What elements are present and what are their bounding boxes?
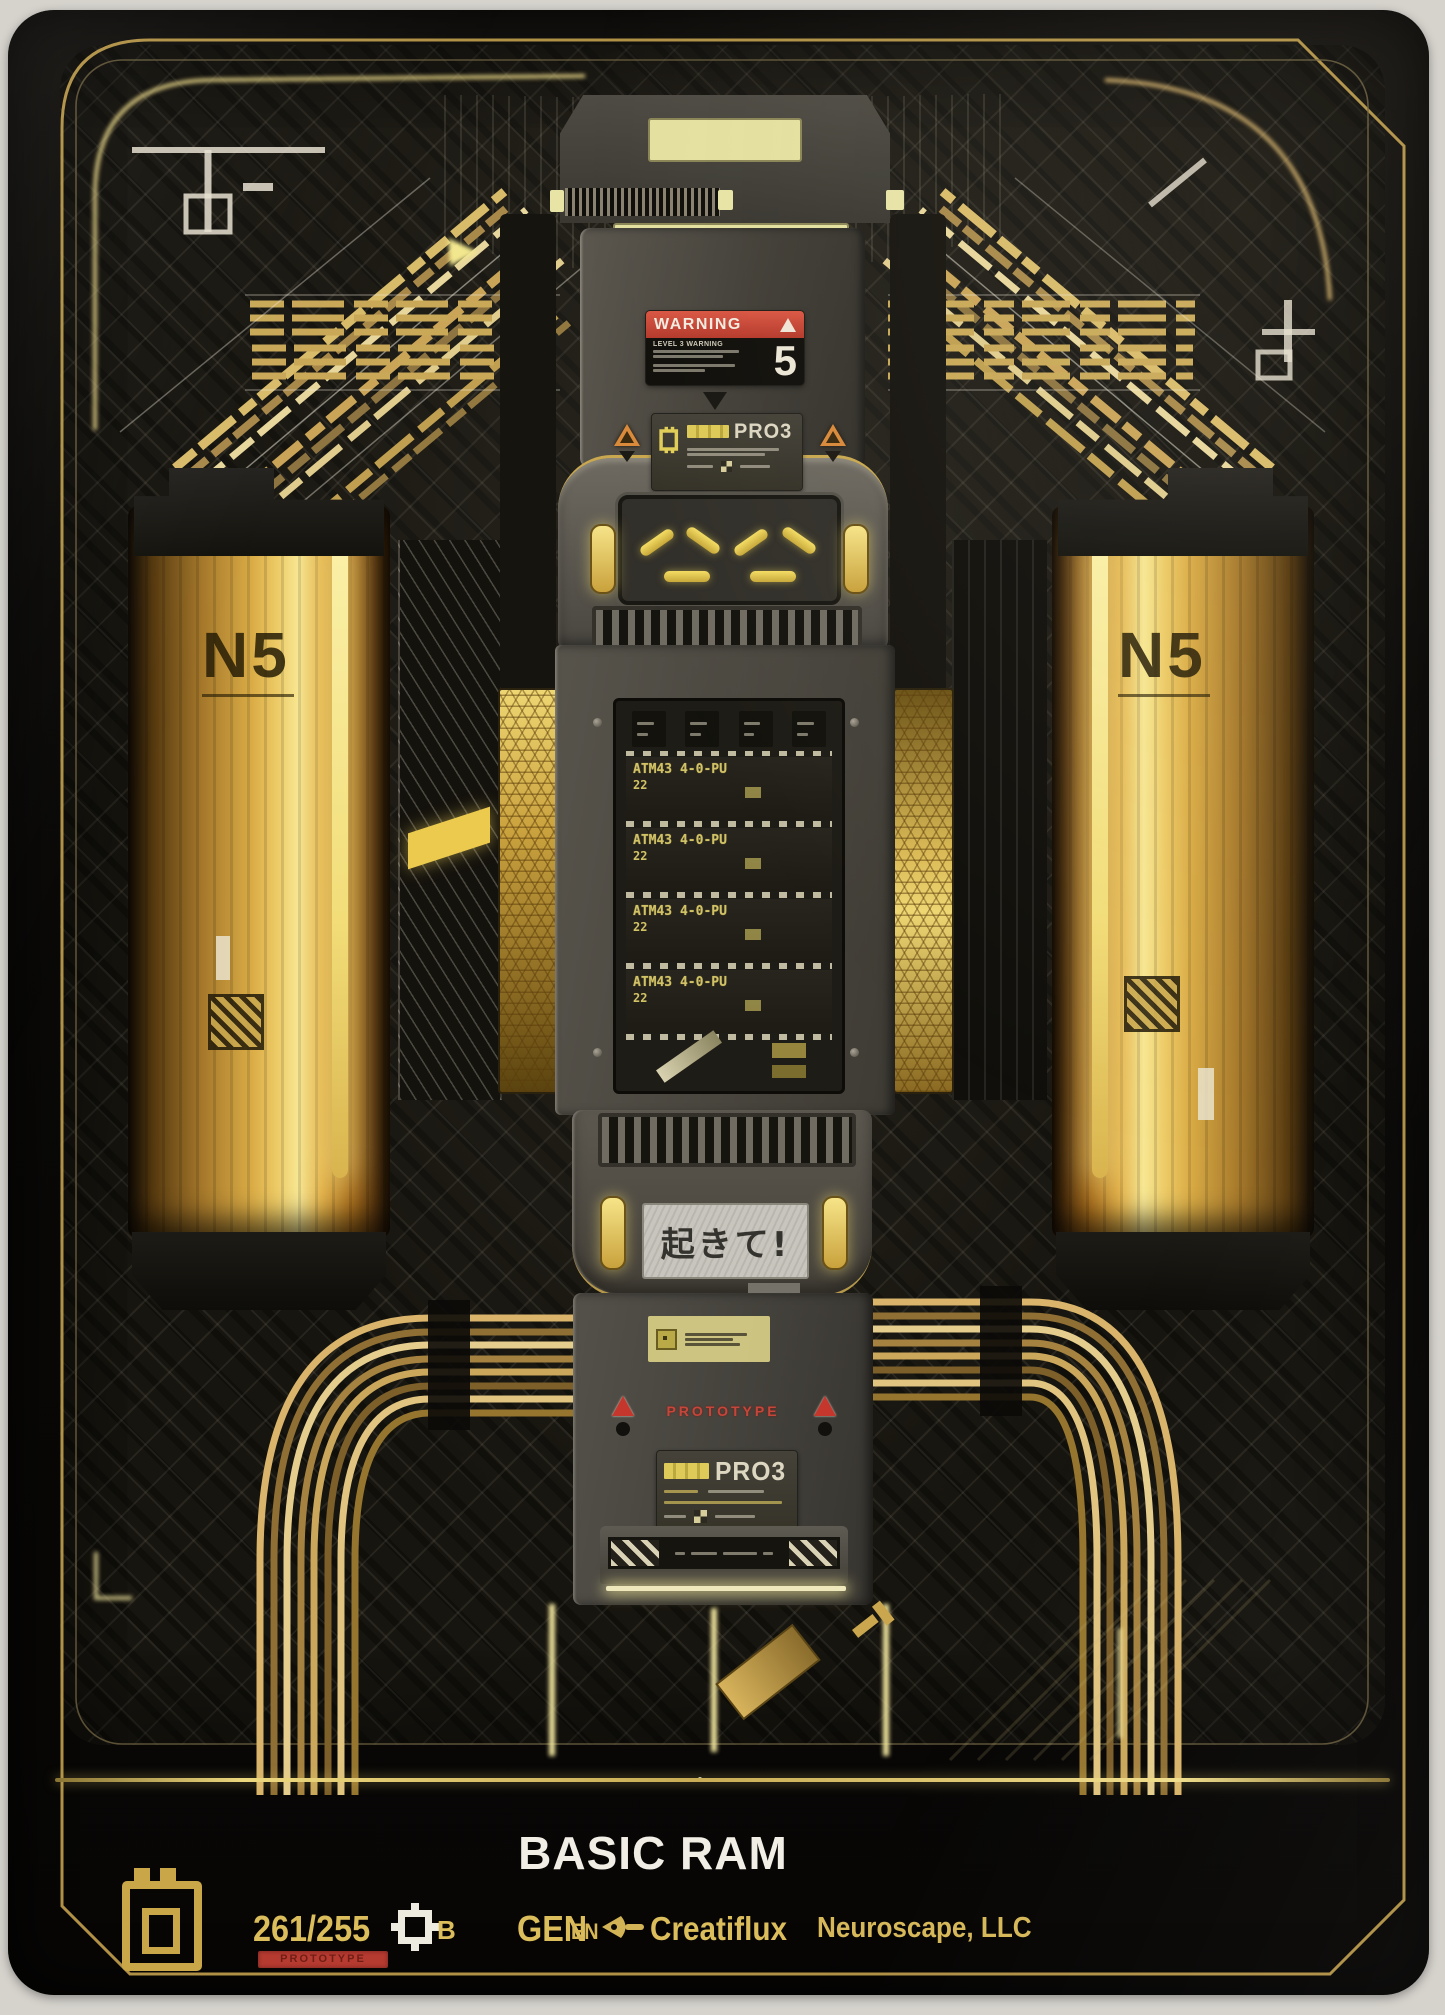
left-dark-flank (500, 214, 556, 692)
vent-slot (732, 527, 769, 558)
vent-slot-horizontal (750, 571, 796, 582)
micro-text-bar (687, 453, 765, 456)
ram-chip: ATM43 4-0-PU 22 (626, 828, 832, 891)
set-icon-inner (142, 1908, 180, 1954)
chip-mark (745, 929, 761, 940)
left-cylinder-bottom-cap (132, 1232, 386, 1310)
card-photo-scene: N5 N5 (0, 0, 1445, 2015)
chip-part-number: ATM43 4-0-PU (633, 904, 825, 920)
n5-logo-subtext-bar (1118, 694, 1210, 697)
chip-mark (745, 858, 761, 869)
left-cylinder-glow-strip (332, 538, 348, 1178)
chip-part-number: ATM43 4-0-PU (633, 762, 825, 778)
right-dark-flank (890, 214, 946, 692)
module-pin-block-lower (598, 1113, 856, 1167)
n5-logo: N5 (202, 618, 294, 692)
warning-text: WARNING (654, 316, 742, 334)
right-gold-pill-light (843, 524, 869, 594)
top-tab-light (550, 190, 564, 212)
prototype-badge: PROTOTYPE (258, 1951, 388, 1968)
trading-card: N5 N5 (8, 10, 1429, 1995)
publisher-name: Neuroscape, LLC (817, 1912, 1056, 1945)
collector-number: 261/255 (253, 1908, 383, 1950)
chip-size: 22 (633, 991, 825, 1005)
small-chip (685, 711, 719, 747)
chip-icon (659, 421, 680, 459)
label-icon-square (656, 1329, 677, 1350)
screw (593, 1048, 602, 1057)
warning-label: WARNING LEVEL 3 WARNING 5 (646, 311, 804, 385)
left-gold-pill-light (600, 1196, 626, 1270)
micro-text-bar (653, 350, 739, 353)
left-red-triangle-icon (612, 1396, 634, 1436)
studio-name: Creatiflux (650, 1910, 802, 1948)
machinery-top-right (1150, 160, 1315, 378)
n5-logo: N5 (1118, 618, 1210, 692)
screw (850, 718, 859, 727)
ram-chip: ATM43 4-0-PU 22 (626, 899, 832, 962)
prototype-stamp: PROTOTYPE (640, 1403, 806, 1421)
warning-level-line: LEVEL 3 WARNING (653, 341, 749, 348)
micro-text-bar (653, 355, 723, 358)
small-yellow-label (648, 1316, 770, 1362)
pro3-model-text: PRO3 (734, 421, 792, 442)
micro-text-bar (653, 364, 735, 367)
footer-gold-rule (55, 1778, 1390, 1782)
left-cylinder-top-cap (134, 468, 384, 556)
left-cylinder-barrel (128, 506, 390, 1238)
left-honeycomb-rail (498, 688, 559, 1094)
connector-track (608, 1537, 840, 1569)
checker-mark (721, 461, 732, 472)
pin-row (626, 963, 832, 969)
pen-nib-icon (600, 1912, 646, 1942)
small-chip (792, 711, 826, 747)
chip-mark (745, 1000, 761, 1011)
right-cylinder-top-cap (1058, 468, 1308, 556)
card-title: BASIC RAM (8, 1826, 1306, 1880)
down-arrow-icon (703, 392, 727, 410)
pro3-model-text: PRO3 (715, 1458, 786, 1484)
chip-part-number: ATM43 4-0-PU (633, 833, 825, 849)
chip-size: 22 (633, 778, 825, 792)
warning-level-number: 5 (774, 341, 797, 381)
small-chip (632, 711, 666, 747)
micro-text-bar (653, 369, 705, 372)
small-chip (739, 711, 773, 747)
set-symbol-icon (112, 1868, 212, 1986)
left-cylinder-small-label (216, 936, 230, 980)
vent-slot (684, 525, 721, 556)
hazard-stripes (611, 1540, 659, 1566)
warning-triangle-icon (780, 318, 796, 332)
collector-symbol-icon (398, 1910, 432, 1944)
right-cylinder-bottom-cap (1056, 1232, 1310, 1310)
ram-chip-panel: ATM43 4-0-PU 22 ATM43 4-0-PU 22 ATM43 4-… (613, 698, 845, 1094)
pro3-top-label: PRO3 (651, 413, 803, 491)
left-warning-triangle-icon (614, 424, 640, 462)
left-cylinder-branding: N5 (202, 618, 294, 697)
vent-grille (618, 495, 841, 605)
screw (850, 1048, 859, 1057)
pro3-bottom-label: PRO3 (656, 1450, 798, 1536)
module-top-slot-light (648, 118, 802, 162)
ram-chip: ATM43 4-0-PU 22 (626, 757, 832, 820)
right-warning-triangle-icon (820, 424, 846, 462)
connector-edge-light (606, 1586, 846, 1591)
redacted-box (687, 425, 729, 438)
vent-slot (638, 527, 675, 558)
small-chip-row (626, 709, 832, 750)
wake-screen: 起きて! (642, 1203, 809, 1279)
right-cylinder-branding: N5 (1118, 618, 1210, 697)
yellow-tag (772, 1065, 806, 1078)
micro-text-bar (740, 465, 770, 468)
vent-slot (780, 525, 817, 556)
chip-size: 22 (633, 920, 825, 934)
micro-text-bar (685, 1338, 733, 1341)
yellow-tag (772, 1043, 806, 1058)
screw (593, 718, 602, 727)
pin-row (626, 892, 832, 898)
micro-text-bar (664, 1501, 782, 1504)
chip-size: 22 (633, 849, 825, 863)
right-cylinder-hazard-square (1124, 976, 1180, 1032)
module-top-pin-connector (565, 188, 720, 216)
wake-screen-text: 起きて! (661, 1217, 791, 1266)
right-cylinder-small-label (1198, 1068, 1214, 1120)
top-tab-light (886, 190, 904, 210)
machinery-top-left (132, 150, 325, 232)
left-capacitor-cylinder: N5 (128, 468, 390, 1310)
right-cylinder-glow-strip (1092, 538, 1108, 1178)
pin-row (626, 751, 832, 757)
rarity-letter: B (437, 1915, 456, 1946)
vent-slot-horizontal (664, 571, 710, 582)
redacted-box (664, 1463, 709, 1479)
n5-logo-subtext-bar (202, 694, 294, 697)
bottom-edge-connector (600, 1526, 848, 1584)
right-capacitor-cylinder: N5 (1052, 468, 1314, 1310)
micro-text-bar (687, 448, 779, 451)
checker-mark (694, 1510, 707, 1523)
hazard-stripes (789, 1540, 837, 1566)
micro-text-bar (685, 1343, 740, 1346)
micro-text-bar (687, 465, 713, 468)
chip-part-number: ATM43 4-0-PU (633, 975, 825, 991)
gold-chip-decor (717, 1625, 820, 1719)
panel-bottom-decor (626, 1041, 832, 1083)
micro-text-bar (685, 1333, 747, 1336)
chip-mark (745, 787, 761, 798)
top-tab-light (718, 190, 733, 210)
right-slatted-strip (952, 540, 1047, 1100)
left-gold-pill-light (590, 524, 616, 594)
right-honeycomb-rail (893, 688, 954, 1094)
ram-chip: ATM43 4-0-PU 22 (626, 970, 832, 1033)
pin-row (626, 821, 832, 827)
language-label: EN (571, 1919, 602, 1945)
left-cylinder-hazard-square (208, 994, 264, 1050)
pin-row (626, 1034, 832, 1040)
right-red-triangle-icon (814, 1396, 836, 1436)
right-gold-pill-light (822, 1196, 848, 1270)
warning-label-header: WARNING (646, 311, 804, 338)
warning-label-body: LEVEL 3 WARNING 5 (646, 338, 804, 384)
